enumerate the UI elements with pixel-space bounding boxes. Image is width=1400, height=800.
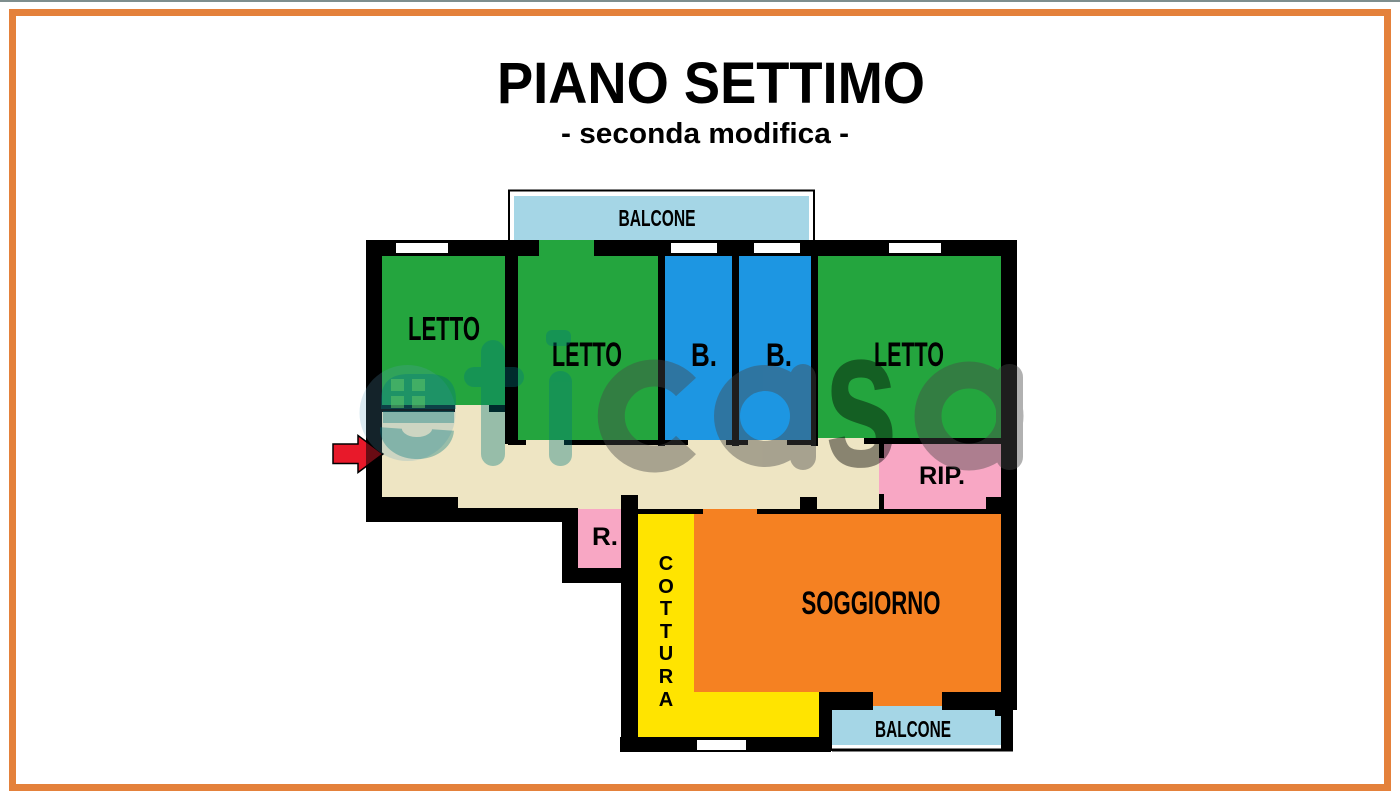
svg-text:BALCONE: BALCONE [619, 205, 696, 231]
svg-text:B.: B. [691, 337, 717, 373]
svg-text:PIANO SETTIMO: PIANO SETTIMO [497, 51, 925, 116]
svg-text:O: O [658, 576, 674, 598]
svg-text:SOGGIORNO: SOGGIORNO [802, 585, 941, 621]
svg-text:U: U [659, 643, 673, 665]
svg-text:- seconda modifica -: - seconda modifica - [561, 118, 849, 150]
svg-text:T: T [660, 621, 672, 643]
svg-text:s: s [824, 287, 898, 508]
svg-text:C: C [659, 553, 673, 575]
svg-text:A: A [659, 689, 673, 711]
svg-text:LETTO: LETTO [408, 310, 480, 347]
svg-text:BALCONE: BALCONE [875, 716, 951, 742]
svg-text:T: T [660, 598, 672, 620]
svg-text:R: R [659, 666, 674, 688]
svg-text:R.: R. [592, 523, 618, 551]
